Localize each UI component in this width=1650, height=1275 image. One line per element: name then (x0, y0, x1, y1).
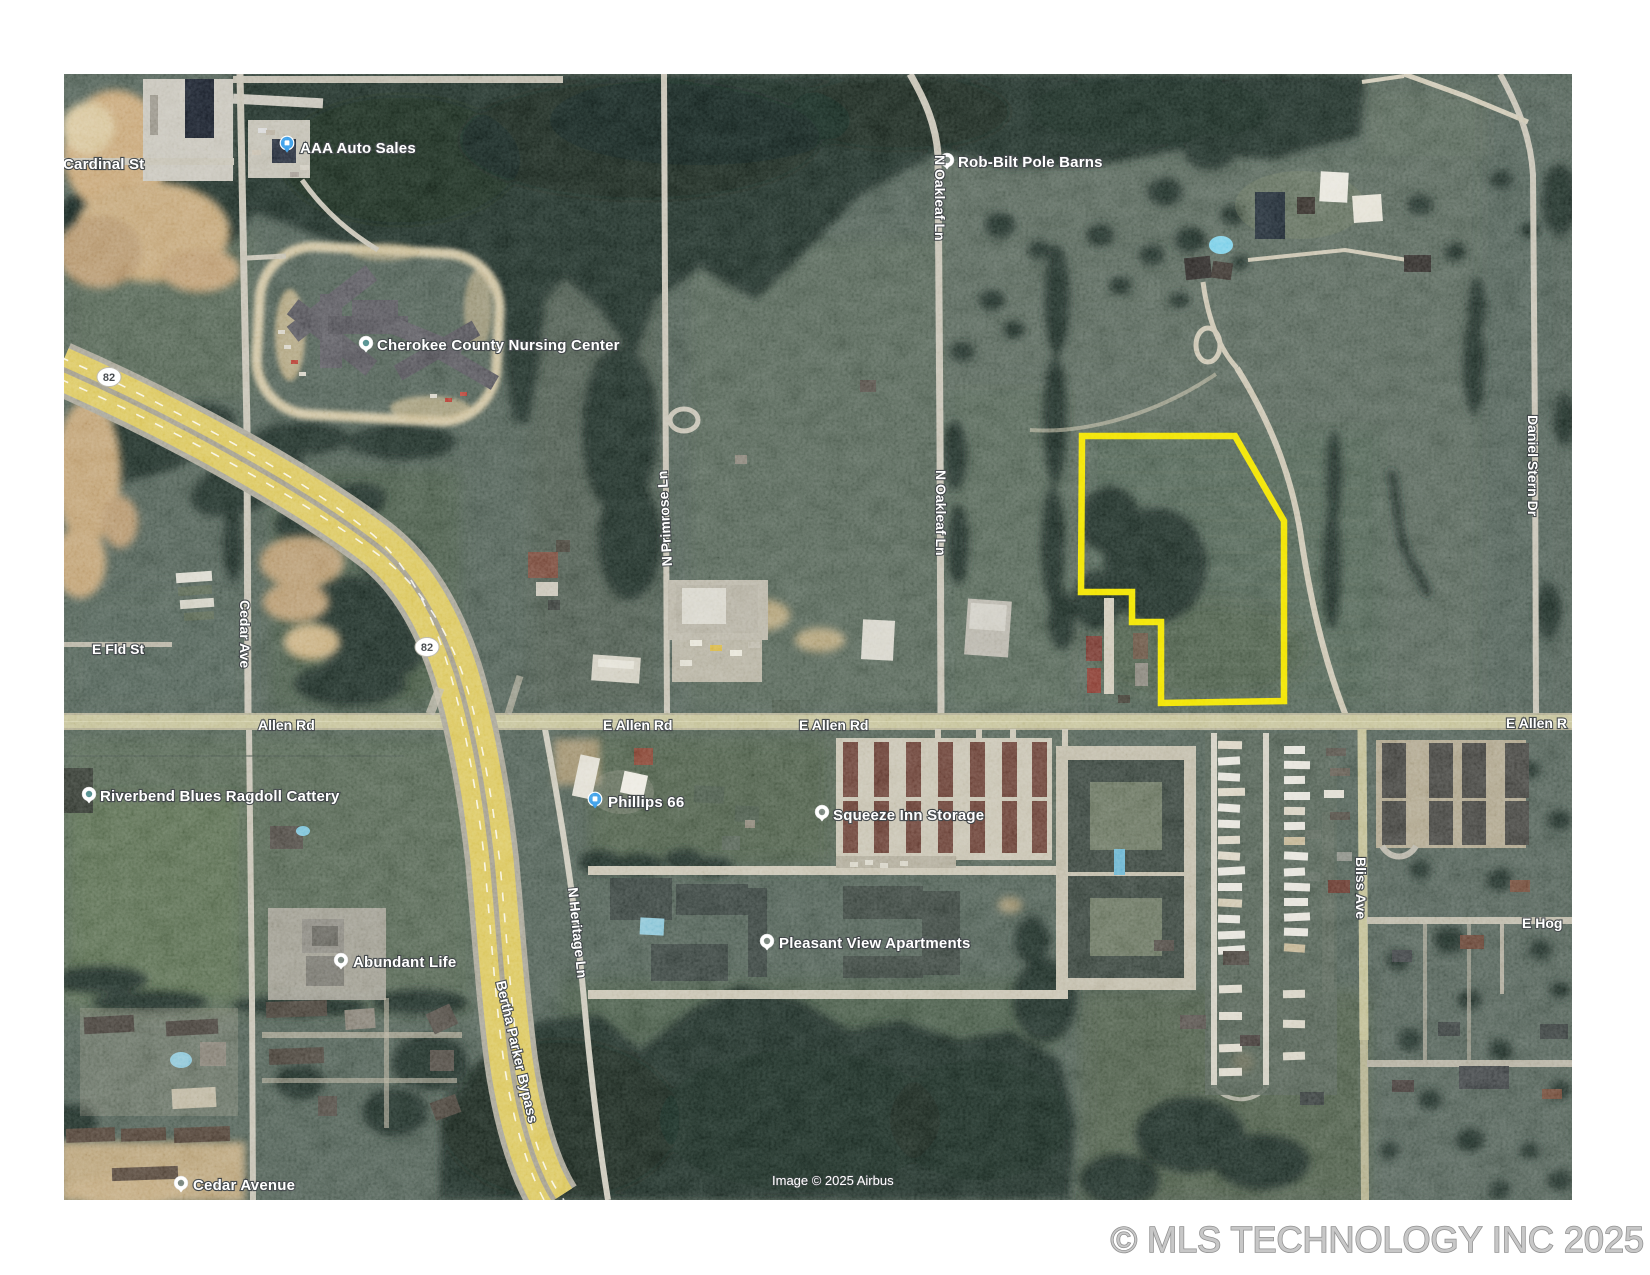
svg-text:© MLS TECHNOLOGY INC 2025: © MLS TECHNOLOGY INC 2025 (1111, 1219, 1644, 1260)
